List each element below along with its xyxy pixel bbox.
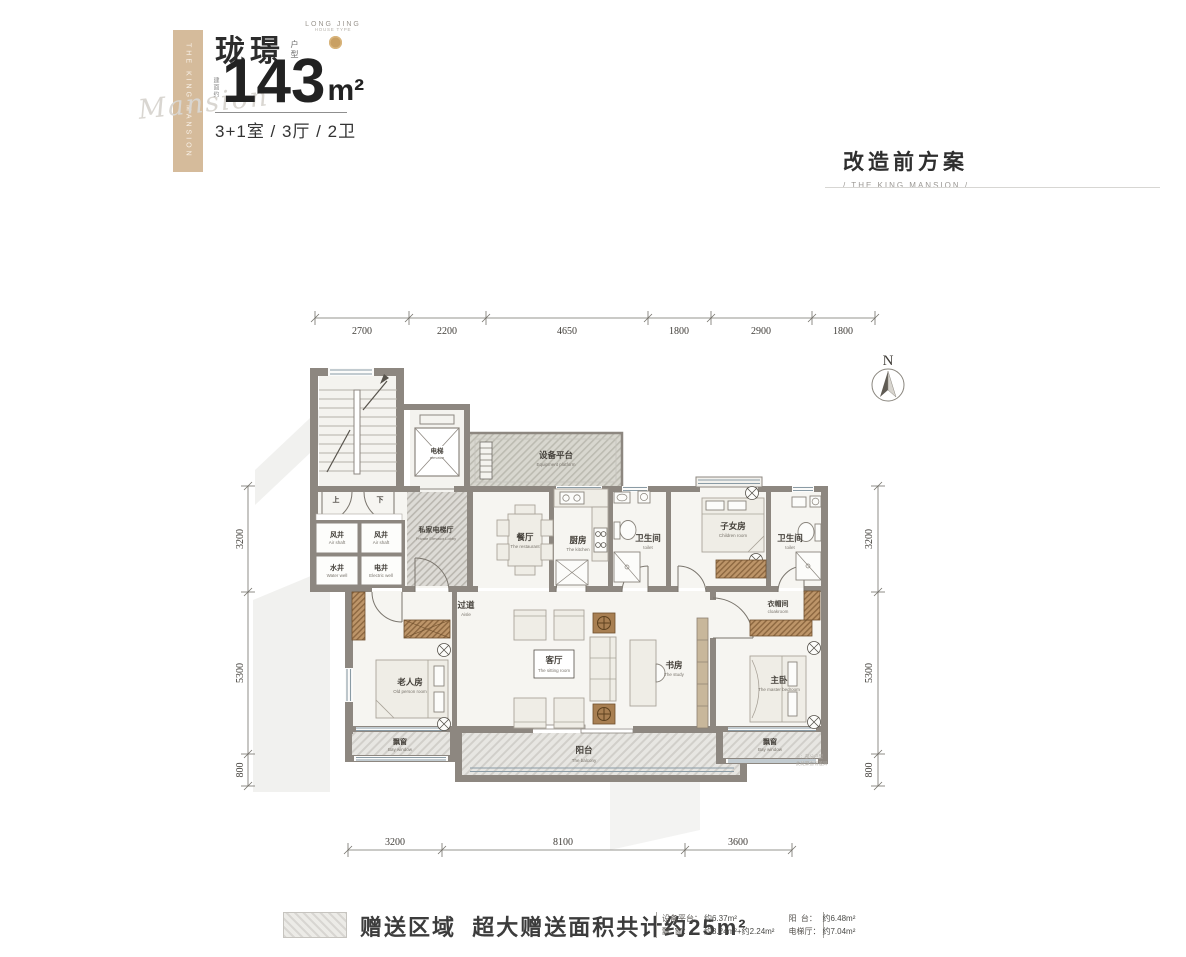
svg-text:Aisle: Aisle bbox=[461, 612, 471, 617]
gift-area-swatch bbox=[283, 912, 347, 938]
svg-text:子女房: 子女房 bbox=[720, 521, 746, 531]
north-arrow-icon: N bbox=[872, 353, 904, 401]
dimension-lines-bottom: 3200 8100 3600 bbox=[344, 837, 796, 857]
note-equipment-value: 约6.37m² bbox=[704, 912, 776, 925]
dimension-lines-left: 3200 5300 800 bbox=[235, 482, 255, 790]
svg-text:风井: 风井 bbox=[374, 530, 388, 539]
svg-text:卫生间: 卫生间 bbox=[777, 533, 803, 543]
svg-text:老人房: 老人房 bbox=[396, 677, 423, 687]
svg-text:水井: 水井 bbox=[330, 563, 344, 572]
area-notes: 设备平台： 约6.37m² 阳 台： 约6.48m² 飘 窗： 约3.24m²+… bbox=[662, 912, 857, 938]
area-note-row: 飘 窗： 约3.24m²+约2.24m² 电梯厅： 约7.04m² bbox=[662, 925, 857, 938]
cloakroom-wardrobe bbox=[750, 620, 812, 636]
svg-text:5300: 5300 bbox=[864, 663, 875, 683]
svg-text:Equipment platform: Equipment platform bbox=[536, 462, 575, 467]
svg-text:2200: 2200 bbox=[437, 326, 457, 337]
room-equipment-platform: 设备平台 Equipment platform bbox=[468, 433, 622, 488]
svg-text:800: 800 bbox=[235, 763, 246, 778]
svg-text:飘窗: 飘窗 bbox=[763, 737, 777, 746]
note-bay-label: 飘 窗： bbox=[662, 925, 704, 938]
svg-text:厨房: 厨房 bbox=[569, 535, 586, 545]
svg-text:此处飘窗有差异: 此处飘窗有差异 bbox=[796, 760, 828, 767]
svg-text:3200: 3200 bbox=[385, 837, 405, 848]
svg-text:Private Elevator Lobby: Private Elevator Lobby bbox=[416, 536, 456, 541]
svg-text:Water well: Water well bbox=[327, 573, 348, 578]
balcony bbox=[455, 733, 747, 782]
svg-text:800: 800 bbox=[864, 763, 875, 778]
svg-text:上: 上 bbox=[333, 495, 340, 504]
svg-text:阳台: 阳台 bbox=[575, 745, 593, 755]
svg-text:1800: 1800 bbox=[833, 326, 853, 337]
svg-text:The sitting room: The sitting room bbox=[538, 668, 571, 673]
svg-text:电井: 电井 bbox=[374, 563, 388, 572]
svg-text:The kitchen: The kitchen bbox=[566, 547, 590, 552]
svg-text:私家电梯厅: 私家电梯厅 bbox=[418, 525, 454, 534]
svg-text:N: N bbox=[883, 353, 894, 369]
note-balcony-value: 约6.48m² bbox=[822, 912, 857, 925]
svg-text:风井: 风井 bbox=[330, 530, 344, 539]
note-balcony-label: 阳 台： bbox=[776, 912, 822, 925]
area-note-row: 设备平台： 约6.37m² 阳 台： 约6.48m² bbox=[662, 912, 857, 925]
svg-text:The balcony: The balcony bbox=[572, 758, 597, 763]
shaft-cells: 风井 Air shaft 风井 Air shaft 水井 Water well … bbox=[313, 514, 405, 588]
svg-text:The study: The study bbox=[664, 672, 685, 677]
svg-text:Bay window: Bay window bbox=[388, 747, 413, 752]
svg-text:The restaurant: The restaurant bbox=[510, 544, 540, 549]
svg-text:elevator: elevator bbox=[430, 455, 445, 460]
svg-text:Bay window: Bay window bbox=[758, 747, 783, 752]
svg-text:下: 下 bbox=[377, 496, 384, 504]
svg-text:※：部分户型: ※：部分户型 bbox=[796, 753, 823, 760]
svg-text:过道: 过道 bbox=[457, 600, 475, 610]
svg-text:3200: 3200 bbox=[235, 529, 246, 549]
svg-text:客厅: 客厅 bbox=[544, 655, 563, 665]
room-elevator: 电梯 elevator bbox=[415, 415, 459, 476]
bookcase bbox=[697, 618, 708, 728]
svg-text:Children room: Children room bbox=[719, 533, 748, 538]
svg-text:Electric well: Electric well bbox=[369, 573, 393, 578]
svg-text:4650: 4650 bbox=[557, 326, 577, 337]
shoe-cabinet bbox=[352, 592, 365, 640]
note-lobby-value: 约7.04m² bbox=[822, 925, 857, 938]
svg-text:5300: 5300 bbox=[235, 663, 246, 683]
svg-text:卫生间: 卫生间 bbox=[635, 533, 661, 543]
dimension-lines-right: 3200 5300 800 bbox=[864, 482, 885, 790]
svg-text:2900: 2900 bbox=[751, 326, 771, 337]
svg-text:3600: 3600 bbox=[728, 837, 748, 848]
svg-text:Air shaft: Air shaft bbox=[329, 540, 346, 545]
svg-text:cloakroom: cloakroom bbox=[768, 609, 789, 614]
floor-plan: .zh{font:600 8.5px "Liberation Sans",san… bbox=[0, 0, 1186, 957]
svg-text:书房: 书房 bbox=[665, 660, 682, 670]
svg-text:电梯: 电梯 bbox=[431, 446, 445, 455]
svg-text:toilet: toilet bbox=[643, 545, 653, 550]
svg-text:衣帽间: 衣帽间 bbox=[768, 599, 789, 608]
dimension-lines-top: 2700 2200 4650 1800 2900 1800 bbox=[311, 311, 879, 337]
children-wardrobe bbox=[716, 560, 766, 578]
legend-divider-left bbox=[656, 912, 657, 938]
svg-text:The master bedroom: The master bedroom bbox=[758, 687, 800, 692]
svg-text:Air shaft: Air shaft bbox=[373, 540, 390, 545]
svg-text:3200: 3200 bbox=[864, 529, 875, 549]
note-equipment-label: 设备平台： bbox=[662, 912, 704, 925]
svg-text:主卧: 主卧 bbox=[770, 675, 788, 685]
svg-text:2700: 2700 bbox=[352, 326, 372, 337]
svg-text:toilet: toilet bbox=[785, 545, 795, 550]
svg-text:Old person room: Old person room bbox=[393, 689, 427, 694]
note-lobby-label: 电梯厅： bbox=[776, 925, 822, 938]
svg-text:设备平台: 设备平台 bbox=[539, 450, 574, 460]
ladder-icon bbox=[480, 442, 492, 479]
note-bay-value: 约3.24m²+约2.24m² bbox=[704, 925, 776, 938]
svg-text:飘窗: 飘窗 bbox=[393, 737, 407, 746]
stair-rail bbox=[354, 390, 360, 474]
svg-text:1800: 1800 bbox=[669, 326, 689, 337]
svg-text:8100: 8100 bbox=[553, 837, 573, 848]
svg-text:餐厅: 餐厅 bbox=[515, 532, 534, 542]
